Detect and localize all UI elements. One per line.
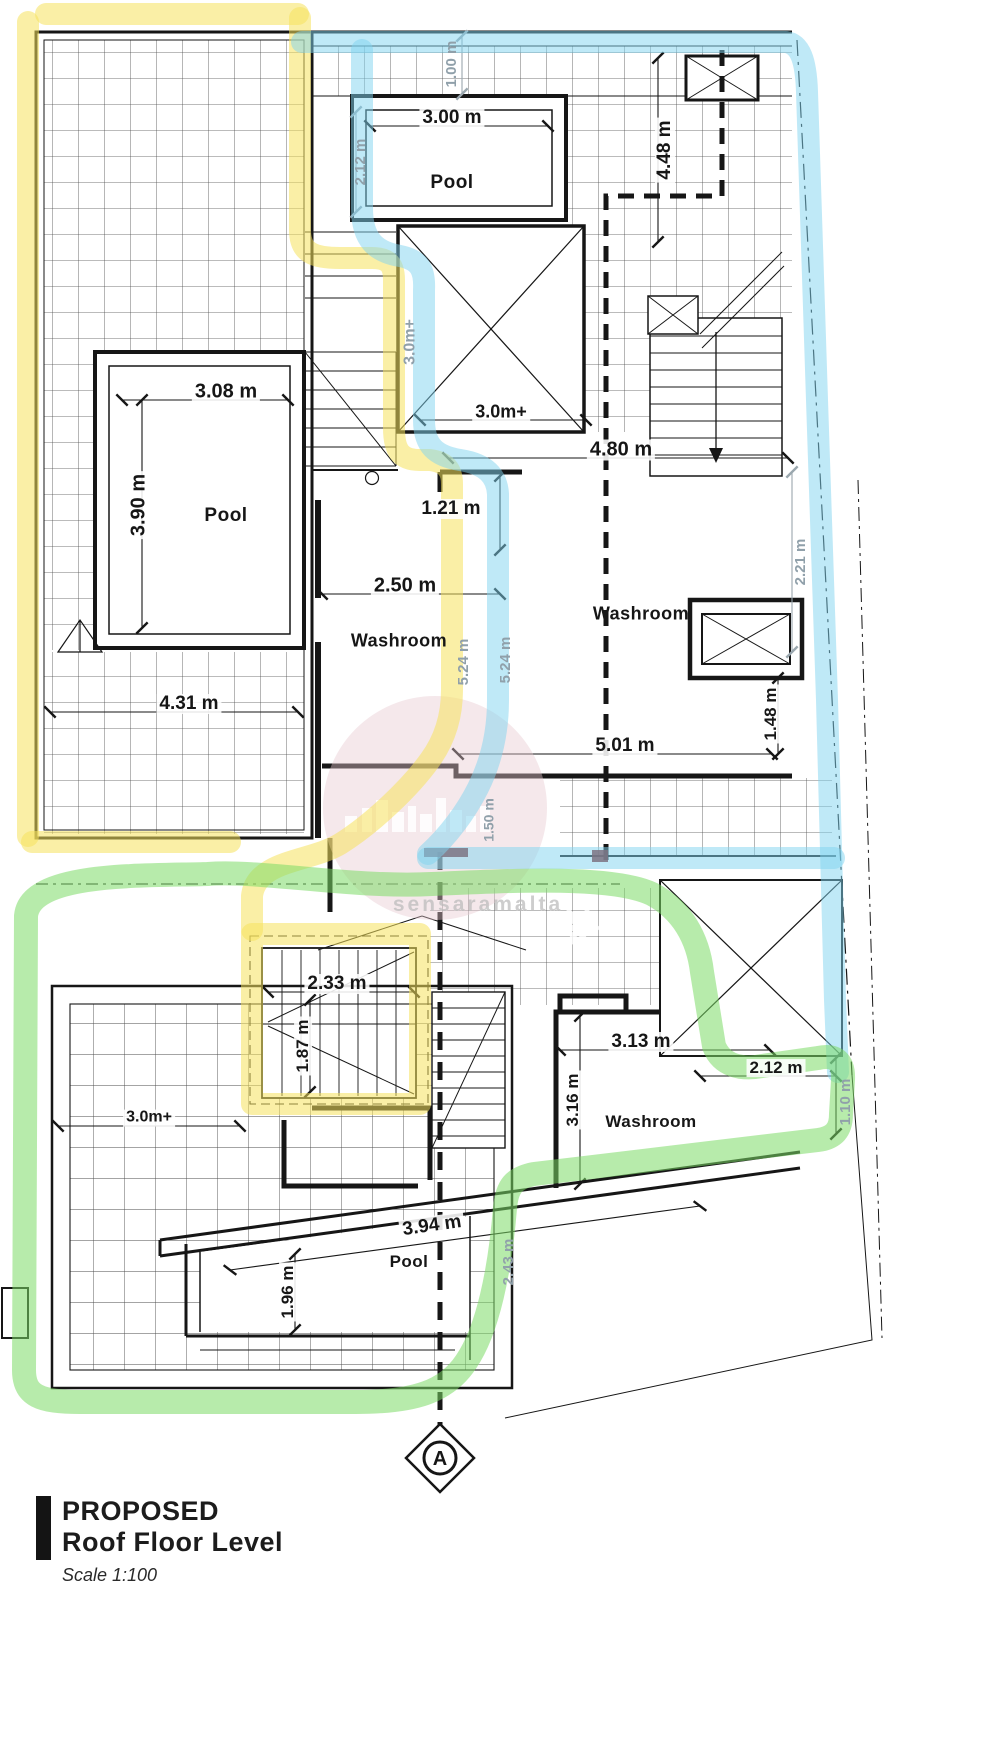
label-dim_300: 3.00 m [419, 108, 484, 128]
label-dim_480: 4.80 m [587, 440, 655, 461]
label-dim_212_lower: 2.12 m [747, 1059, 806, 1077]
skylight-right [690, 600, 802, 678]
label-washroom_lower: Washroom [605, 1113, 696, 1131]
label-dim_524_b: 5.24 m [498, 637, 514, 684]
label-dim_316: 3.16 m [564, 1071, 582, 1130]
label-dim_30m_horiz: 3.0m+ [472, 403, 530, 422]
label-dim_30m_lower: 3.0m+ [123, 1110, 175, 1127]
drawing-subtitle: Roof Floor Level [62, 1527, 283, 1558]
floor-plan-svg: A [0, 0, 986, 1752]
label-dim_501: 5.01 m [592, 736, 657, 756]
stair-right [650, 318, 782, 476]
label-dim_30m_vert: 3.0m+ [403, 319, 420, 365]
label-dim_524_a: 5.24 m [456, 639, 472, 686]
label-dim_243: 2.43 m [501, 1239, 517, 1286]
label-dim_121: 1.21 m [418, 499, 483, 519]
label-dim_250: 2.50 m [371, 576, 439, 597]
label-pool_bottom: Pool [390, 1253, 429, 1271]
label-dim_196: 1.96 m [279, 1263, 297, 1322]
label-dim_221: 2.21 m [793, 539, 809, 586]
section-marker: A [406, 1424, 474, 1492]
label-dim_233: 2.33 m [304, 974, 369, 994]
section-marker-letter: A [433, 1448, 447, 1470]
label-dim_313: 3.13 m [608, 1032, 673, 1052]
label-dim_110: 1.10 m [838, 1079, 854, 1126]
label-dim_150: 1.50 m [482, 798, 497, 842]
dim-tick [694, 1201, 707, 1211]
label-pool_top: Pool [430, 173, 473, 193]
label-dim_187: 1.87 m [294, 1017, 312, 1076]
label-washroom_right: Washroom [593, 605, 689, 624]
label-dim_431: 4.31 m [156, 694, 221, 714]
drawing-title: PROPOSED [62, 1496, 283, 1527]
label-dim_100: 1.00 m [444, 41, 460, 88]
label-dim_148: 1.48 m [762, 685, 780, 744]
label-pool_left: Pool [204, 506, 247, 526]
stair-center-lower [432, 992, 505, 1148]
watermark-text: sensaramalta [393, 893, 563, 917]
skylight-bottom-right [660, 880, 842, 1056]
label-dim_212_top: 2.12 m [353, 139, 369, 186]
drawing-scale: Scale 1:100 [62, 1565, 283, 1586]
title-block-bar [36, 1496, 51, 1560]
label-dim_308: 3.08 m [192, 382, 260, 403]
label-dim_390: 3.90 m [129, 471, 150, 539]
label-dim_448: 4.48 m [655, 117, 675, 182]
floor-plan-page: A 1.00 m3.00 mPool2.12 m4.48 m3.08 m3.90… [0, 0, 986, 1752]
label-washroom_left: Washroom [351, 632, 447, 651]
title-block: PROPOSED Roof Floor Level Scale 1:100 [36, 1496, 283, 1586]
